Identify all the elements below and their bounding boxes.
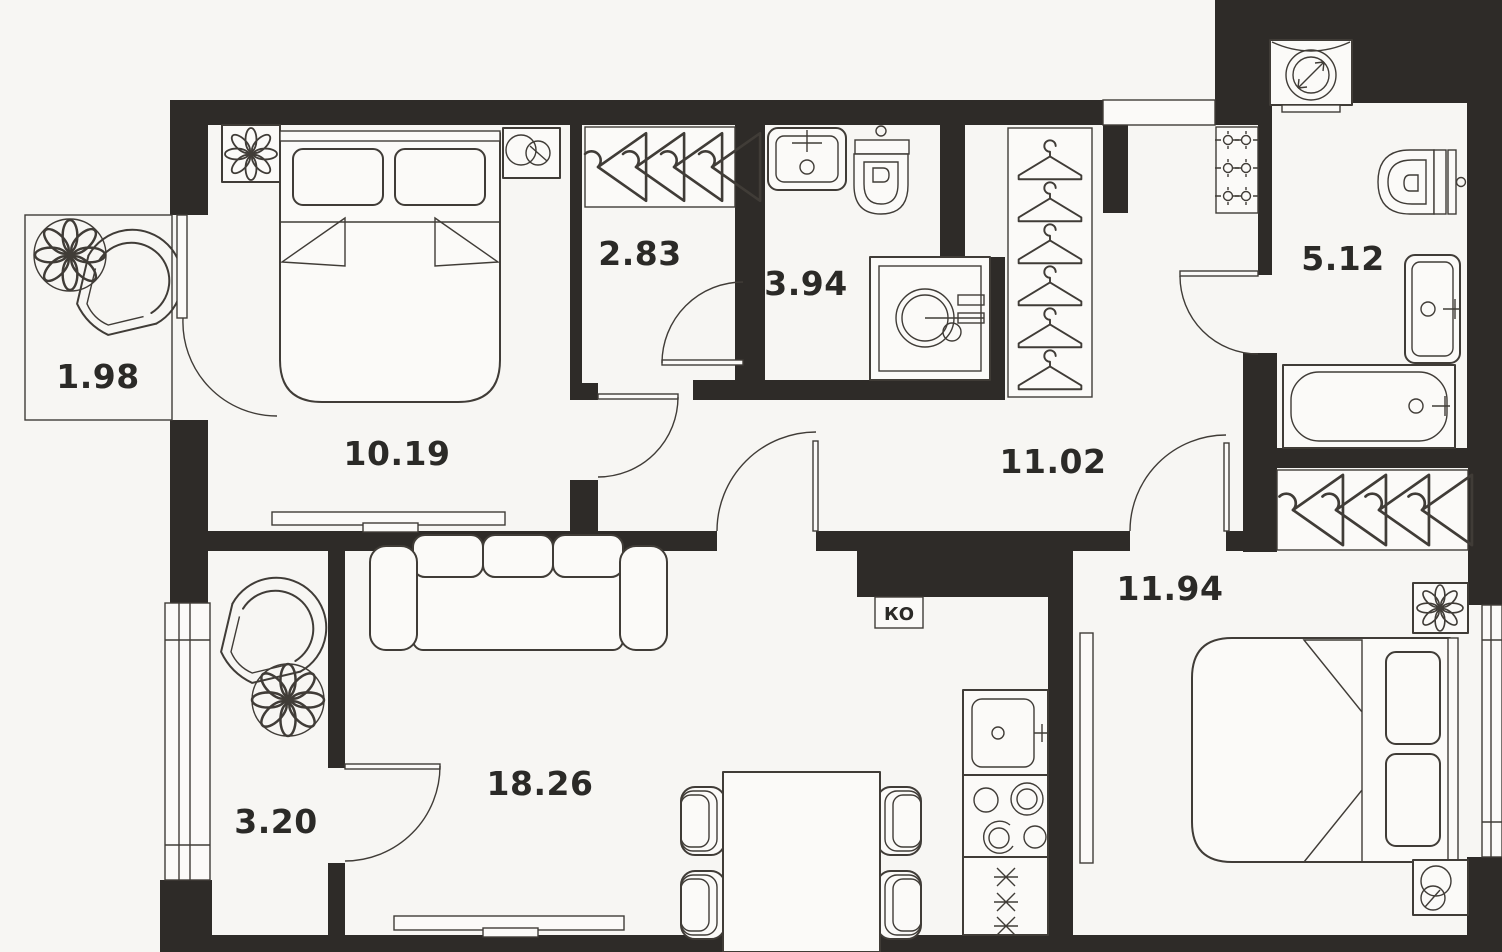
chair-icon bbox=[681, 787, 725, 855]
radiator-bedroom-2 bbox=[1080, 633, 1093, 863]
door-swing-bedroom-2 bbox=[1130, 435, 1229, 531]
chair-icon bbox=[877, 787, 921, 855]
dining-set bbox=[681, 772, 921, 952]
washing-machine-2-icon bbox=[1270, 40, 1352, 112]
washing-machine-icon bbox=[870, 257, 990, 380]
hallway-wardrobe-hangers bbox=[1008, 128, 1092, 397]
plant-shelf-2-icon bbox=[1413, 583, 1468, 633]
plant-icon bbox=[34, 219, 106, 291]
room-label-bathroom-small: 3.94 bbox=[764, 264, 847, 303]
room-label-balcony-large: 3.20 bbox=[234, 802, 317, 841]
window-bedroom-2 bbox=[1482, 605, 1502, 857]
kitchen-sink-icon bbox=[963, 690, 1048, 775]
door-swing-balcony-small bbox=[177, 215, 277, 416]
plant-shelf-icon bbox=[222, 125, 280, 182]
radiator-bedroom-1 bbox=[272, 512, 505, 532]
bed-icon bbox=[280, 131, 500, 402]
room-label-bedroom-2: 11.94 bbox=[1117, 569, 1224, 608]
nightstand-lamp-2-icon bbox=[1413, 860, 1468, 915]
bed-2-icon bbox=[1192, 638, 1458, 862]
kitchen-block bbox=[963, 690, 1048, 935]
hallway bbox=[1008, 127, 1259, 397]
sink-icon bbox=[768, 128, 846, 190]
sofa-icon bbox=[370, 535, 667, 650]
room-label-bedroom-1: 10.19 bbox=[344, 434, 451, 473]
door-swing-balcony-large bbox=[345, 764, 440, 861]
room-label-wardrobe: 2.83 bbox=[598, 234, 681, 273]
door-swing-bathroom-large bbox=[1180, 271, 1258, 354]
toilet-2-icon bbox=[1378, 150, 1466, 214]
living-kitchen: КО bbox=[370, 432, 1048, 952]
floor-plan: КО 1.98 10.19 2.83 3.94 11.02 5.12 11.94… bbox=[0, 0, 1502, 952]
dining-table-icon bbox=[723, 772, 880, 952]
window-balcony-large bbox=[165, 603, 210, 880]
stove-icon bbox=[963, 775, 1048, 857]
door-swing-living bbox=[717, 432, 818, 531]
room-label-living-kitchen: 18.26 bbox=[487, 764, 594, 803]
entrance-opening bbox=[1103, 100, 1215, 125]
door-swing-bedroom-1 bbox=[598, 394, 678, 477]
shaft-label: КО bbox=[884, 604, 914, 625]
chair-icon bbox=[681, 871, 725, 939]
bathtub-icon bbox=[1283, 365, 1455, 448]
room-label-bathroom-large: 5.12 bbox=[1301, 239, 1384, 278]
radiator-living bbox=[394, 916, 624, 937]
room-label-balcony-small: 1.98 bbox=[56, 357, 139, 396]
sink-2-icon bbox=[1405, 255, 1460, 363]
armchair-2-icon bbox=[198, 557, 346, 705]
nightstand-lamp-icon bbox=[503, 128, 560, 178]
chair-icon bbox=[877, 871, 921, 939]
floor-plan-page: КО 1.98 10.19 2.83 3.94 11.02 5.12 11.94… bbox=[0, 0, 1502, 952]
room-label-hallway: 11.02 bbox=[1000, 442, 1107, 481]
shaft-box: КО bbox=[875, 597, 923, 628]
door-swing-wardrobe bbox=[662, 282, 743, 365]
closet-bedroom-2 bbox=[1277, 470, 1472, 550]
toilet-icon bbox=[854, 126, 909, 214]
vent-shaft-icon bbox=[1215, 127, 1259, 213]
kitchen-cabinet-icon bbox=[963, 857, 1048, 935]
